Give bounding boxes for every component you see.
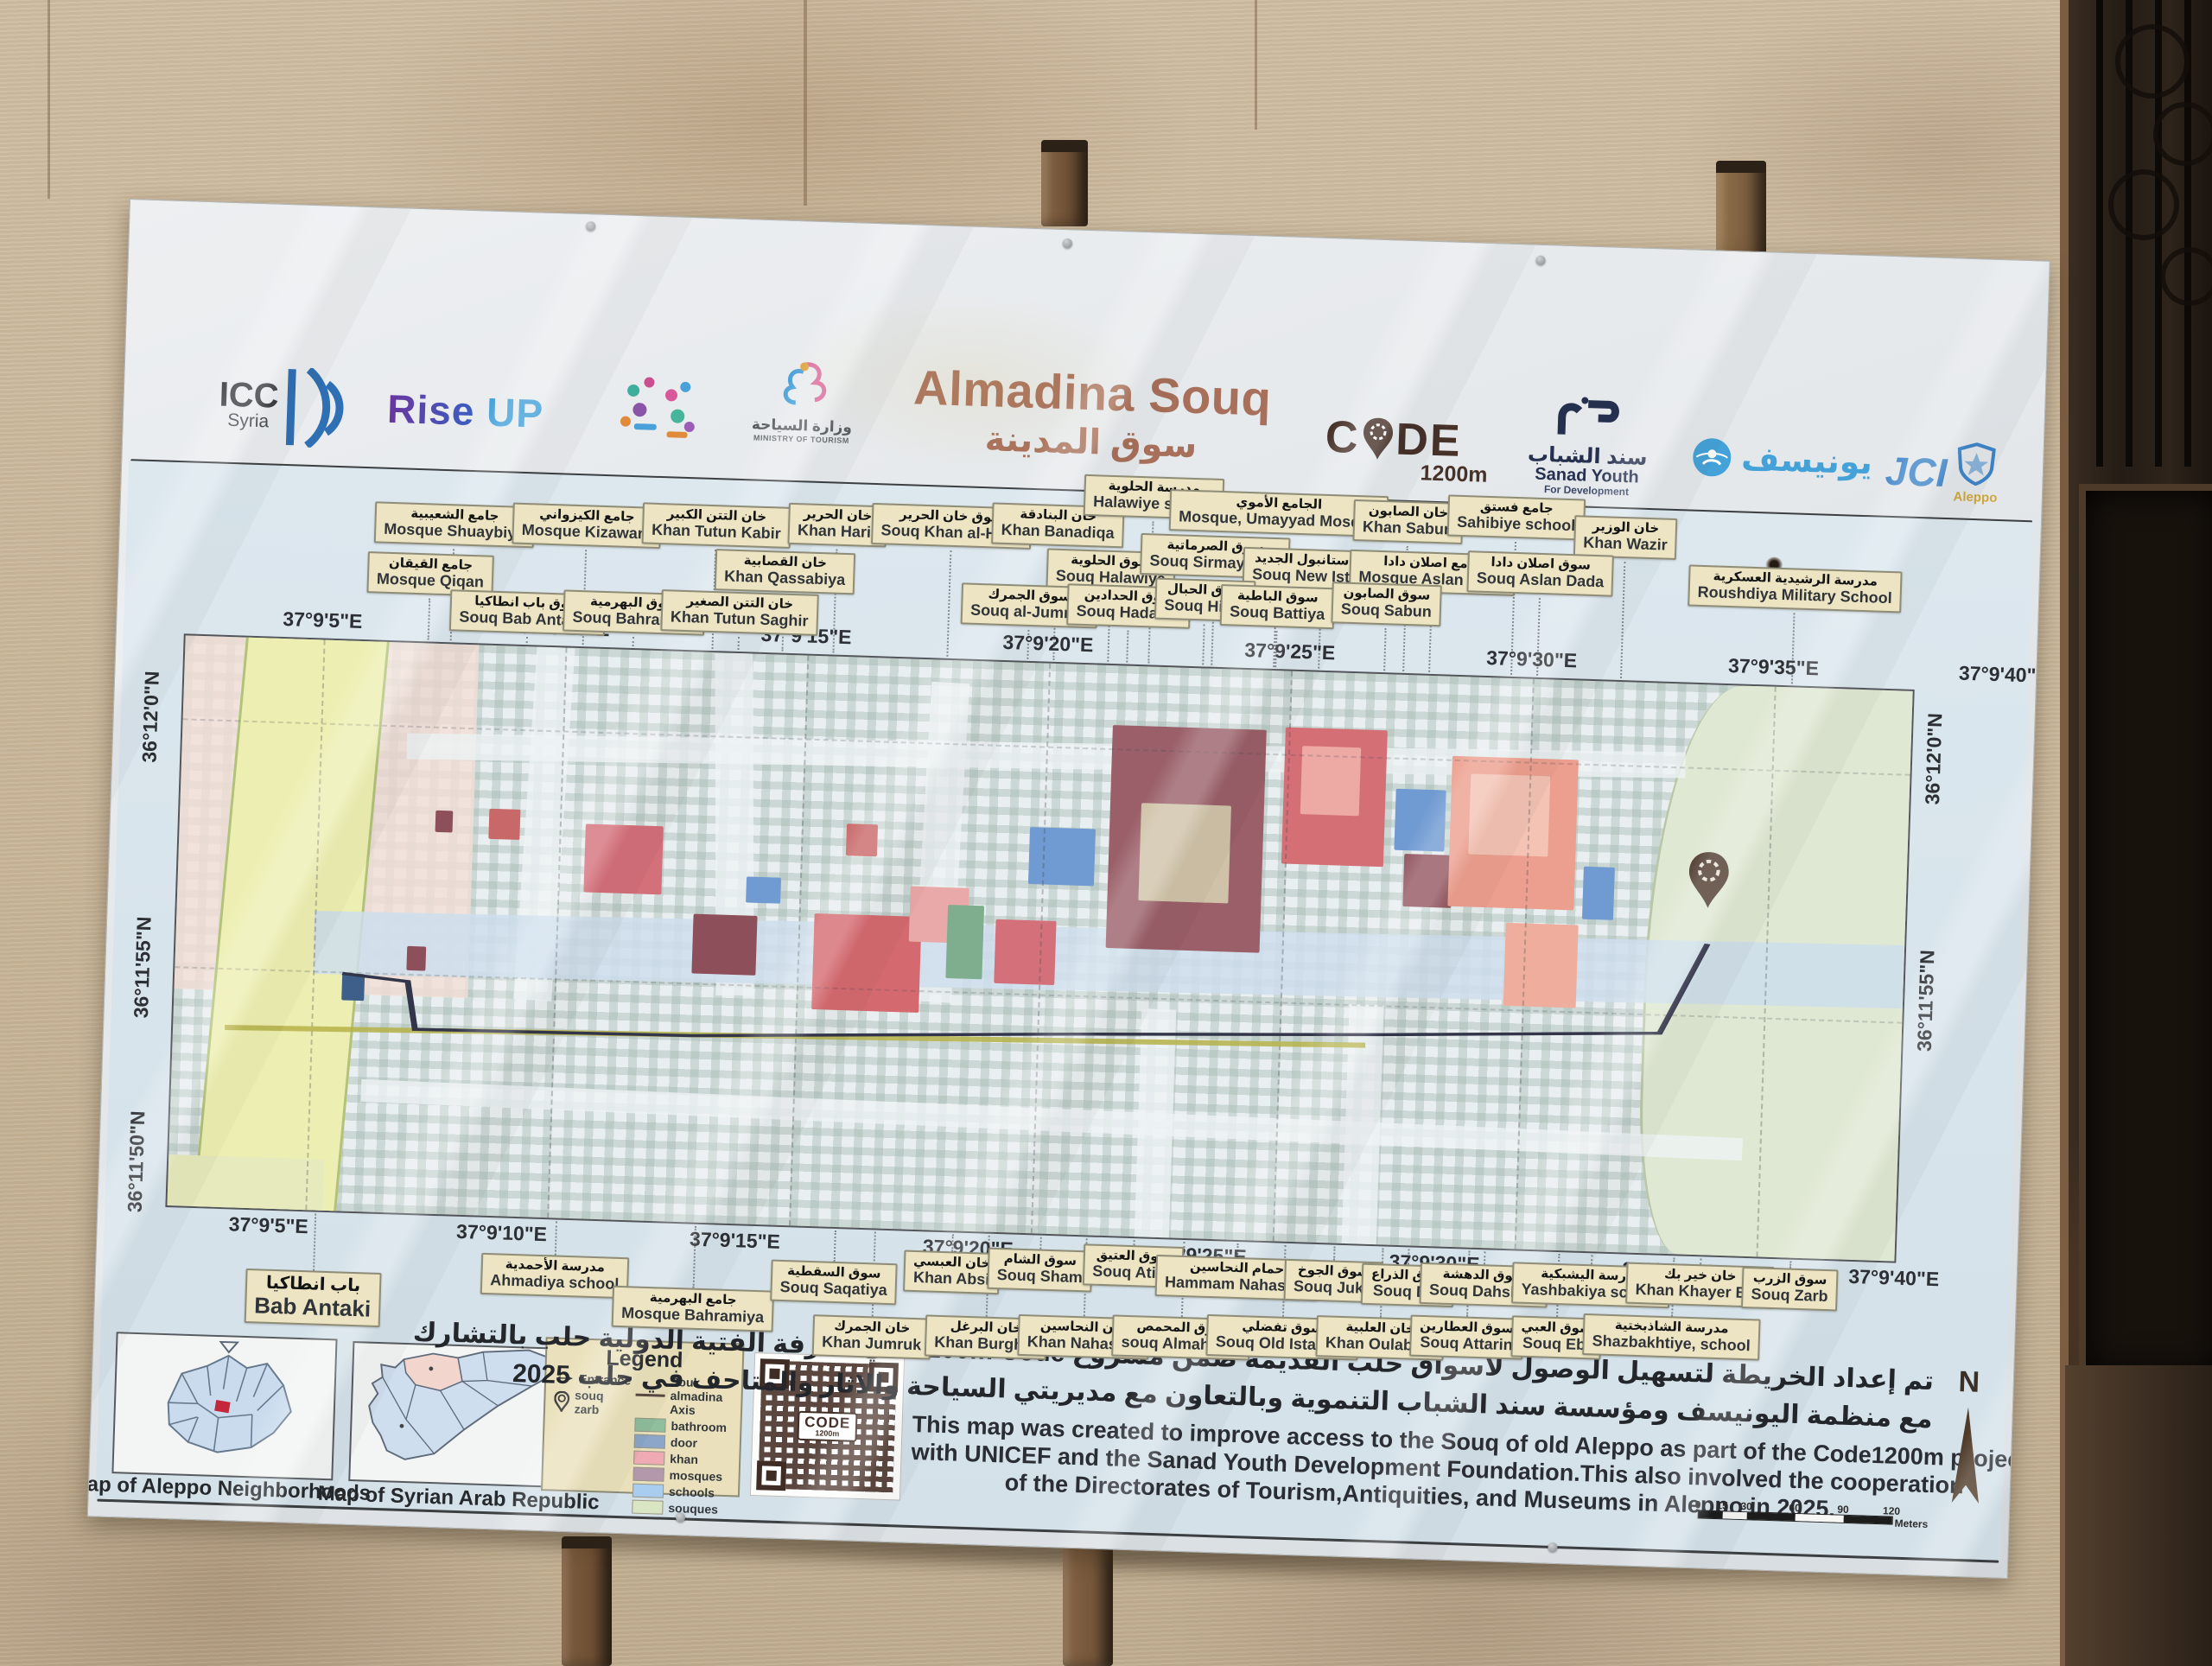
map-label: جامع الكيزوانيMosque Kizawani (512, 503, 661, 549)
map-label-english: Khan Qassabiya (724, 568, 846, 588)
map-label: خان الوزيرKhan Wazir (1573, 515, 1678, 560)
map-label-english: Mosque Kizawani (522, 522, 652, 544)
longitude-label: 37°9'5"E (283, 607, 363, 633)
map-label: خان الجمركKhan Jumruk (812, 1314, 932, 1359)
map-label-english: Khan Tutun Kabir (652, 522, 781, 544)
map-label-english: Mosque Shuaybiye (384, 521, 525, 543)
map-label: خان القصابيةKhan Qassabiya (715, 549, 856, 595)
legend-swatch (632, 1467, 664, 1482)
scale-segment (1723, 1511, 1747, 1519)
leader-line (1700, 1258, 1701, 1264)
legend-item: mosques (632, 1467, 729, 1485)
axis-line-swatch (636, 1393, 665, 1396)
map-label: خان التتن الكبيرKhan Tutun Kabir (642, 502, 791, 548)
map-label: مدرسة الشاذبختيةShazbakhtiye, school (1582, 1313, 1760, 1360)
map-label-english: Souq Sabun (1341, 601, 1433, 621)
longitude-label: 37°9'40"E (1959, 662, 2050, 688)
map-label: جامع فستقSahibiye school (1447, 494, 1586, 540)
legend-item-label: schools (669, 1485, 715, 1500)
latitude-label: 36°11'50"N (123, 1105, 149, 1218)
latitude-label: 36°12'0"N (137, 660, 164, 773)
longitude-label: 37°9'35"E (1728, 654, 1820, 680)
map-label-english: Khan Absi (912, 1269, 990, 1289)
map-label: خان العبسيKhan Absi (903, 1250, 1001, 1294)
scale-segment (1699, 1510, 1723, 1518)
map-label-english: Mosque Qiqan (377, 570, 485, 591)
map-label-english: Souq Ebi (1521, 1335, 1592, 1354)
map-label: جامع الشعيبيةMosque Shuaybiye (374, 501, 535, 548)
legend-swatch (632, 1500, 663, 1515)
map-label-english: Khan Wazir (1583, 535, 1668, 555)
legend-item-label: khan (670, 1452, 698, 1466)
legend-souq-zarb-label: souq zarb (574, 1388, 630, 1417)
latitude-label: 36°11'55"N (1913, 944, 1940, 1058)
north-arrow-icon (1939, 1396, 1994, 1510)
gate-panel (2079, 484, 2212, 1379)
latitude-label: 36°12'0"N (1921, 703, 1948, 816)
qr-center-logo: CODE 1200m (797, 1411, 857, 1442)
map-label: مدرسة الأحمديةAhmadiya school (480, 1253, 630, 1299)
photo-of-map-signboard: ICC Syria Rise UP (0, 0, 2212, 1666)
legend-swatch (633, 1451, 664, 1466)
wooden-post-bottom-left (562, 1536, 612, 1666)
map-label-english: Bab Antaki (254, 1293, 372, 1321)
legend-item: bathroom (634, 1418, 731, 1435)
aleppo-neighborhoods-icon (114, 1333, 333, 1475)
leader-line (1591, 1255, 1592, 1264)
scale-unit: Meters (1894, 1517, 1928, 1530)
longitude-label: 37°9'5"E (228, 1212, 308, 1238)
leader-line (1789, 1262, 1791, 1269)
legend-items: bathroomdoorkhanmosquesschoolssouques (632, 1418, 732, 1517)
map-label: سوق الشامSouq Sham (987, 1248, 1092, 1293)
map-label: باب انطاكياBab Antaki (245, 1269, 382, 1327)
longitude-label: 37°9'40"E (1848, 1265, 1940, 1291)
map-label-english: Shazbakhtiye, school (1592, 1332, 1751, 1355)
legend-swatch (634, 1434, 665, 1449)
north-arrow: N (1935, 1366, 1999, 1515)
longitude-label: 37°9'25"E (1244, 639, 1336, 664)
longitude-label: 37°9'20"E (1002, 631, 1094, 657)
leader-line (526, 637, 528, 643)
map-label-english: Souq Attarin (1419, 1334, 1514, 1354)
map-label: جامع البهرميةMosque Bahramiya (612, 1286, 775, 1332)
map-label: خان التتن الصغيرKhan Tutun Saghir (660, 589, 818, 636)
scale-segment (1747, 1512, 1796, 1521)
map-label-english: Souq Battiya (1230, 603, 1325, 623)
map-label: سوق الباطيةSouq Battiya (1220, 584, 1335, 629)
scale-segment (1796, 1514, 1844, 1523)
map-label: سوق الزربSouq Zarb (1741, 1267, 1838, 1311)
legend-pin-icon (554, 1391, 569, 1413)
map-label: سوق اصلان داداSouq Aslan Dada (1466, 550, 1614, 596)
gate-scroll-ornament (2160, 247, 2212, 306)
longitude-label: 37°9'10"E (456, 1220, 548, 1246)
legend-item-label: door (671, 1435, 698, 1450)
map-label-english: Souq Zarb (1751, 1286, 1828, 1306)
latitude-label: 36°11'55"N (130, 911, 156, 1024)
gate-scroll-ornament (2115, 24, 2190, 99)
map-label-english: Souq Aslan Dada (1477, 570, 1605, 592)
legend-item: schools (632, 1484, 729, 1501)
map-label-english: Khan Tutun Saghir (671, 608, 809, 630)
scale-tick: 0 (1695, 1498, 1701, 1510)
leader-line (632, 637, 634, 646)
gate-sill (2065, 1365, 2212, 1666)
map-label-english: Mosque Bahramiya (621, 1305, 765, 1326)
map-label: سوق العطارينSouq Attarin (1409, 1315, 1523, 1360)
north-label: N (1938, 1366, 1999, 1397)
map-label-english: Souq Saqatiya (779, 1279, 887, 1300)
map-label-english: Souq Sham (996, 1267, 1083, 1287)
map-label-english: Sahibiye school (1457, 514, 1576, 535)
wall-joint (1255, 0, 1257, 130)
longitude-label: 37°9'15"E (690, 1228, 781, 1254)
wooden-post-top (1041, 140, 1088, 226)
map-label-english: Khan Harir (798, 522, 878, 542)
legend-swatch (632, 1484, 664, 1498)
map-label-english: Khan Banadiqa (1001, 522, 1115, 543)
legend-item: door (634, 1434, 731, 1452)
gate-scroll-ornament (2153, 102, 2212, 166)
map-label-english: Khan Sabun (1363, 518, 1454, 538)
map-label-english: Ahmadiya school (490, 1272, 620, 1294)
map-label: سوق السقطيةSouq Saqatiya (770, 1260, 897, 1305)
legend-item: khan (633, 1451, 730, 1468)
qr-finder (756, 1460, 786, 1491)
legend-swatch (634, 1418, 665, 1433)
sign-board: ICC Syria Rise UP (87, 199, 2050, 1579)
wall-joint (48, 0, 50, 199)
gate-scroll-ornament (2108, 169, 2179, 240)
inset-aleppo-map (111, 1332, 337, 1480)
map-label: مدرسة الرشيدية العسكريةRoushdiya Militar… (1688, 564, 1902, 613)
map-label-english: Khan Jumruk (822, 1334, 922, 1355)
wall-joint (804, 0, 807, 206)
scale-segment (1844, 1516, 1892, 1524)
legend-item-label: bathroom (671, 1419, 727, 1434)
legend-item-label: mosques (669, 1468, 722, 1484)
map-label: سوق الصابونSouq Sabun (1331, 582, 1441, 626)
longitude-label: 37°9'30"E (1486, 646, 1578, 672)
